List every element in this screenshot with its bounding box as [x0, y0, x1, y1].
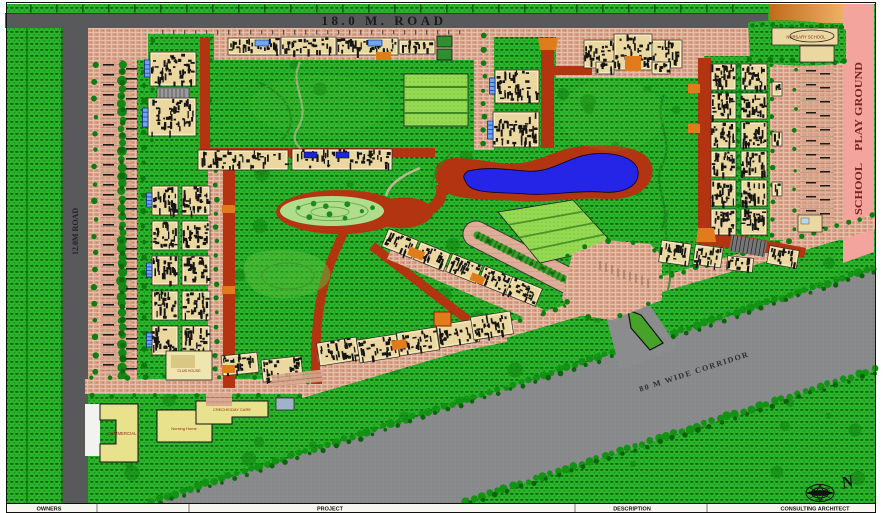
svg-text:DESCRIPTION: DESCRIPTION — [613, 507, 651, 513]
svg-text:SCHOOL PLAY GROUND: SCHOOL PLAY GROUND — [853, 62, 865, 215]
svg-text:OWNERS: OWNERS — [37, 507, 62, 513]
svg-text:12.0M ROAD: 12.0M ROAD — [71, 208, 80, 255]
svg-text:COMMERCIAL: COMMERCIAL — [107, 431, 137, 436]
svg-text:NURSARY SCHOOL: NURSARY SCHOOL — [786, 35, 826, 40]
svg-text:CLUB HOUSE: CLUB HOUSE — [177, 369, 201, 373]
svg-text:Nursing Home: Nursing Home — [171, 426, 197, 431]
svg-text:CONSULTING ARCHITECT: CONSULTING ARCHITECT — [780, 507, 850, 513]
svg-text:PROJECT: PROJECT — [317, 507, 344, 513]
svg-text:18.0 M. ROAD: 18.0 M. ROAD — [321, 13, 446, 28]
svg-text:CRECHE/DAY CARE: CRECHE/DAY CARE — [213, 407, 251, 412]
